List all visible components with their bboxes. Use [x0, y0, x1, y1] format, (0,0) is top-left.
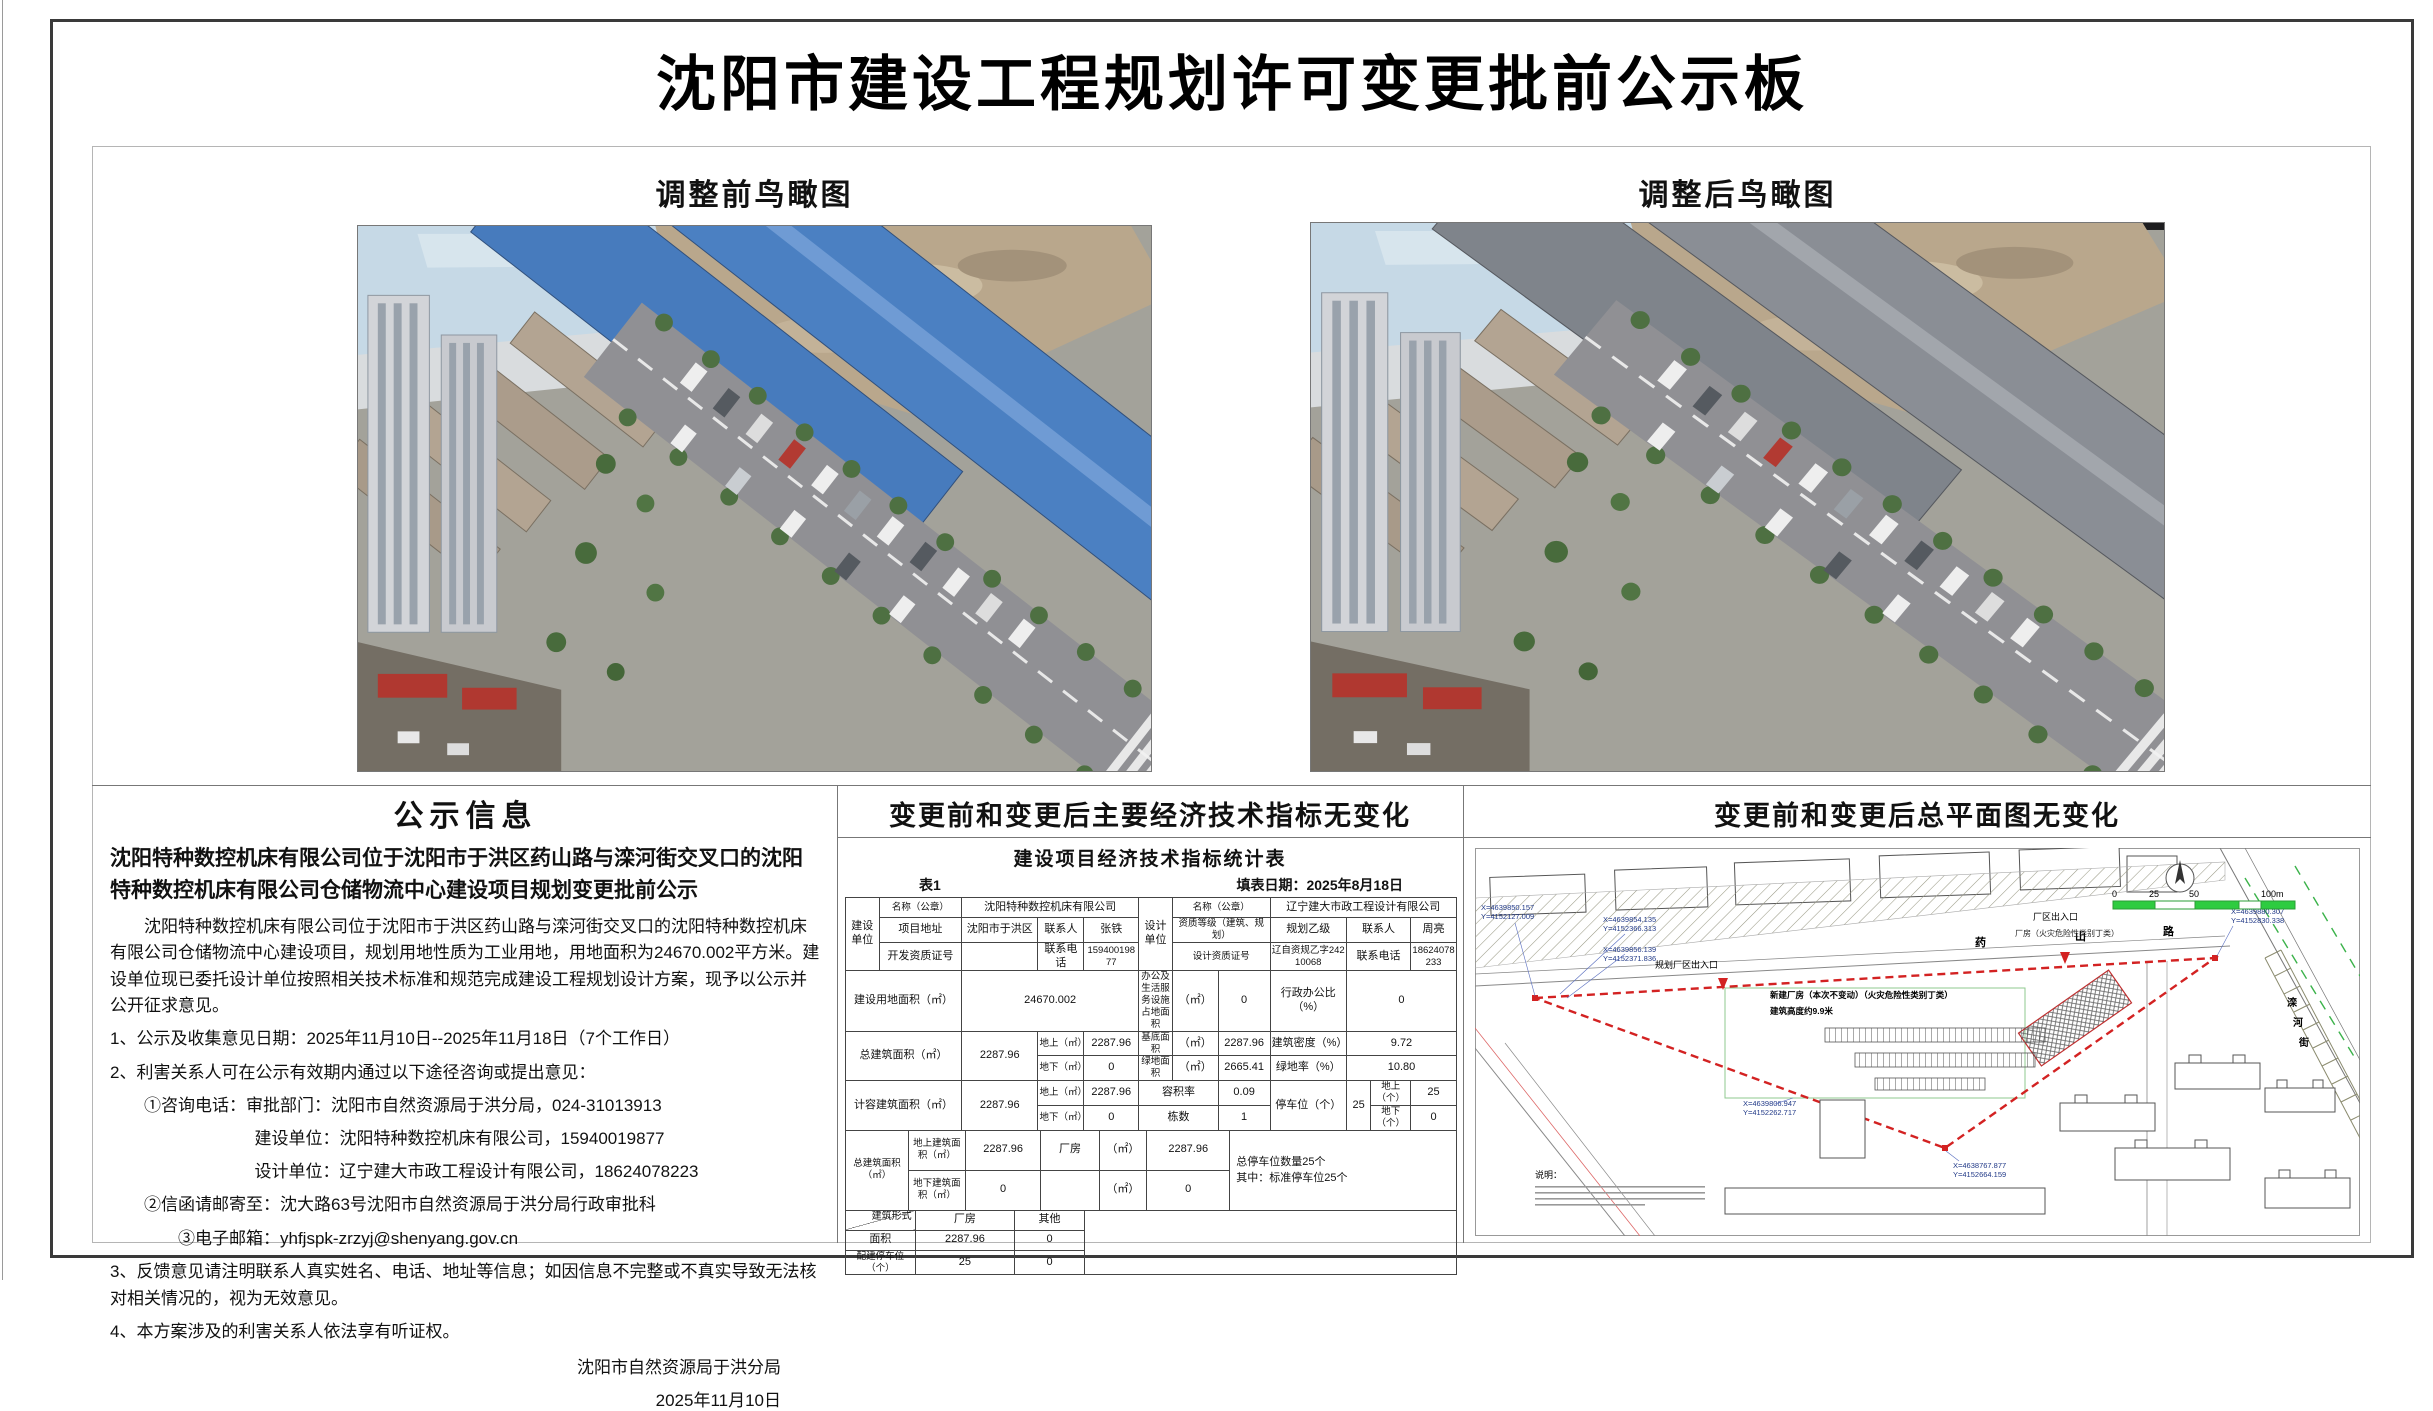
cell-form-factory: 厂房	[915, 1210, 1015, 1230]
cell-count-label: 栋数	[1139, 1105, 1218, 1130]
public-notice-column: 公示信息 沈阳特种数控机床有限公司位于沈阳市于洪区药山路与滦河街交叉口的沈阳特种…	[92, 785, 837, 1243]
indicators-column: 变更前和变更后主要经济技术指标无变化 建设项目经济技术指标统计表 表1 填表日期…	[837, 785, 1463, 1243]
cell-density-value: 9.72	[1346, 1031, 1456, 1056]
siteplan-header: 变更前和变更后总平面图无变化	[1463, 785, 2371, 838]
svg-text:Y=4152262.717: Y=4152262.717	[1743, 1108, 1796, 1117]
cell-far-value: 0.09	[1218, 1081, 1270, 1106]
parking-note-line1: 总停车位数量25个	[1236, 1154, 1455, 1171]
after-view-label: 调整后鸟瞰图	[1310, 170, 2165, 214]
cell-addr-label: 项目地址	[879, 918, 961, 943]
notice-item-channels: 2、利害关系人可在公示有效期内通过以下途径咨询或提出意见：	[110, 1059, 821, 1086]
cell-design-phone: 18624078233	[1411, 942, 1457, 971]
cell-build-phone: 15940019877	[1084, 942, 1139, 971]
economic-indicators-table-lower: 建筑形式 厂房 其他 面积 2287.96 0 配建停车位（个） 25 0	[845, 1210, 1457, 1276]
svg-text:X=4638767.877: X=4638767.877	[1953, 1161, 2006, 1170]
svg-text:100m: 100m	[2261, 889, 2284, 899]
table-number: 表1	[919, 875, 941, 895]
cell-factory-unit: （㎡）	[1099, 1130, 1147, 1170]
svg-text:Y=4152830.338: Y=4152830.338	[2231, 916, 2284, 925]
cell-factory-value: 2287.96	[1147, 1130, 1230, 1170]
cell-design-contact-label: 联系人	[1346, 918, 1410, 943]
page-title: 沈阳市建设工程规划许可变更批前公示板	[50, 36, 2414, 123]
aerial-view-after	[1310, 222, 2165, 772]
cell-cap-below-label: 地下（㎡）	[1038, 1105, 1084, 1130]
cell-area-other: 0	[1015, 1230, 1085, 1250]
cell-green-rate-value: 10.80	[1346, 1056, 1456, 1081]
cell-p-below-label: 地下（个）	[1371, 1105, 1411, 1130]
cell-below-area-type	[1041, 1170, 1099, 1210]
svg-text:Y=4152664.159: Y=4152664.159	[1953, 1170, 2006, 1179]
economic-indicators-table-upper: 建设单位 名称（公章） 沈阳特种数控机床有限公司 设计单位 名称（公章） 辽宁建…	[845, 897, 1457, 1131]
cell-parking-label: 停车位（个）	[1270, 1081, 1346, 1131]
cell-form-diagonal: 建筑形式	[846, 1210, 916, 1230]
cell-addr: 沈阳市于洪区	[962, 918, 1038, 943]
svg-text:Y=4152127.009: Y=4152127.009	[1481, 912, 1534, 921]
cell-dev-cert	[962, 942, 1038, 971]
cell-green-value: 2665.41	[1218, 1056, 1270, 1081]
cell-p-above-value: 25	[1411, 1081, 1457, 1106]
notice-header: 公示信息	[110, 791, 821, 835]
road-name-char1: 药	[1975, 935, 1986, 949]
cell-p-below-value: 0	[1411, 1105, 1457, 1130]
svg-text:50: 50	[2189, 889, 2199, 899]
cell-total-label: 总建筑面积（㎡）	[846, 1031, 962, 1081]
cell-design-name-label: 名称（公章）	[1172, 898, 1270, 918]
siteplan-drawing: 药 山 路 滦 河 街 厂房（火灾危险性类别丁类）	[1475, 848, 2360, 1236]
notice-date: 2025年11月10日	[110, 1386, 821, 1411]
cell-form-empty	[1084, 1210, 1456, 1275]
cell-total-value: 2287.96	[962, 1031, 1038, 1081]
notice-phone-line: ①咨询电话：审批部门：沈阳市自然资源局于洪分局，024-31013913	[110, 1092, 821, 1119]
cell-base-value: 2287.96	[1218, 1031, 1270, 1056]
cell-parking-note: 总停车位数量25个 其中：标准停车位25个	[1230, 1130, 1457, 1210]
indicators-header: 变更前和变更后主要经济技术指标无变化	[837, 785, 1463, 838]
factory-tag: 厂房（火灾危险性类别丁类）	[2015, 928, 2119, 938]
cell-qual-label: 资质等级（建筑、规划）	[1172, 918, 1270, 943]
cell-below-area-label: 地下建筑面积（㎡）	[908, 1170, 965, 1210]
aerial-view-before	[357, 225, 1152, 772]
notice-item-feedback: 3、反馈意见请注明联系人真实姓名、电话、地址等信息；如因信息不完整或不真实导致无…	[110, 1258, 821, 1312]
cell-land-label: 建设用地面积（㎡）	[846, 971, 962, 1031]
cell-base-unit: （㎡）	[1172, 1031, 1218, 1056]
cell-green-label: 绿地面积	[1139, 1056, 1173, 1081]
svg-text:Y=4152366.313: Y=4152366.313	[1603, 924, 1656, 933]
cell-phone-label: 联系电话	[1038, 942, 1084, 971]
notice-bold-title: 沈阳特种数控机床有限公司位于沈阳市于洪区药山路与滦河街交叉口的沈阳特种数控机床有…	[110, 843, 821, 906]
cell-above-label: 地上（㎡）	[1038, 1031, 1084, 1056]
cell-factory-label: 厂房	[1041, 1130, 1099, 1170]
road-right-char2: 河	[2293, 1017, 2303, 1029]
cell-admin-label: 行政办公比（%）	[1270, 971, 1346, 1031]
cell-green-unit: （㎡）	[1172, 1056, 1218, 1081]
cell-allot-other: 0	[1015, 1250, 1085, 1275]
notice-mail-line: ②信函请邮寄至：沈大路63号沈阳市自然资源局于洪分局行政审批科	[110, 1191, 821, 1218]
cell-office-value: 0	[1218, 971, 1270, 1031]
notice-paragraph: 沈阳特种数控机床有限公司位于沈阳市于洪区药山路与滦河街交叉口的沈阳特种数控机床有…	[110, 914, 821, 1019]
notice-email-line: ③电子邮箱：yhfjspk-zrzyj@shenyang.gov.cn	[110, 1225, 821, 1252]
cell-p-above-label: 地上（个）	[1371, 1081, 1411, 1106]
cell-below-value: 0	[1084, 1056, 1139, 1081]
svg-text:说明：: 说明：	[1535, 1169, 1562, 1180]
notice-builder-line: 建设单位：沈阳特种数控机床有限公司，15940019877	[110, 1125, 821, 1152]
cell-allot-factory: 25	[915, 1250, 1015, 1275]
entrance-label-1: 规划厂区出入口	[1655, 959, 1718, 970]
entrance-label-2: 厂区出入口	[2033, 911, 2078, 922]
notice-item-hearing: 4、本方案涉及的利害关系人依法享有听证权。	[110, 1318, 821, 1345]
fill-date: 填表日期：2025年8月18日	[1236, 875, 1403, 895]
svg-text:X=4639856.139: X=4639856.139	[1603, 945, 1656, 954]
cell-contact-label: 联系人	[1038, 918, 1084, 943]
svg-text:X=4639854.135: X=4639854.135	[1603, 915, 1656, 924]
cell-allot-label: 配建停车位（个）	[846, 1250, 916, 1275]
cell-office-label: 办公及生活服务设施占地面积	[1139, 971, 1173, 1031]
cell-far-label: 容积率	[1139, 1081, 1218, 1106]
road-right-char1: 滦	[2287, 996, 2298, 1009]
cell-count-value: 1	[1218, 1105, 1270, 1130]
cell-cap-above-value: 2287.96	[1084, 1081, 1139, 1106]
economic-indicators-table-mid: 总建筑面积（㎡） 地上建筑面积（㎡） 2287.96 厂房 （㎡） 2287.9…	[845, 1130, 1457, 1211]
cell-cap-below-value: 0	[1084, 1105, 1139, 1130]
svg-text:25: 25	[2149, 889, 2159, 899]
svg-text:0: 0	[2112, 889, 2117, 899]
cell-total2-label: 总建筑面积（㎡）	[846, 1130, 909, 1210]
cell-above-area-label: 地上建筑面积（㎡）	[908, 1130, 965, 1170]
cell-above-area-value: 2287.96	[965, 1130, 1041, 1170]
cell-base-label: 基底面积	[1139, 1031, 1173, 1056]
cell-area-label: 面积	[846, 1230, 916, 1250]
cell-cap-value: 2287.96	[962, 1081, 1038, 1131]
cell-office-unit: （㎡）	[1172, 971, 1218, 1031]
cell-cap-label: 计容建筑面积（㎡）	[846, 1081, 962, 1131]
cell-above-value: 2287.96	[1084, 1031, 1139, 1056]
cell-below-area-unit: （㎡）	[1099, 1170, 1147, 1210]
aerial-before-scene	[358, 226, 1151, 771]
aerial-after-scene	[1311, 223, 2164, 771]
factory-note-line2: 建筑高度约9.9米	[1769, 1006, 1833, 1016]
factory-note-line1: 新建厂房（本次不变动）（火灾危险性类别丁类）	[1770, 990, 1953, 1000]
svg-text:Y=4152371.836: Y=4152371.836	[1603, 954, 1656, 963]
notice-designer-line: 设计单位：辽宁建大市政工程设计有限公司，18624078223	[110, 1158, 821, 1185]
road-right-char3: 街	[2298, 1036, 2309, 1049]
cell-below-label: 地下（㎡）	[1038, 1056, 1084, 1081]
cell-build-unit: 建设单位	[846, 898, 880, 971]
cell-land-value: 24670.002	[962, 971, 1139, 1031]
road-name-char3: 路	[2163, 924, 2175, 938]
cell-green-rate-label: 绿地率（%）	[1270, 1056, 1346, 1081]
siteplan-svg: 药 山 路 滦 河 街 厂房（火灾危险性类别丁类）	[1475, 848, 2360, 1236]
screen-edge-line	[2, 0, 3, 1280]
parking-note-line2: 其中：标准停车位25个	[1236, 1170, 1455, 1187]
cell-dev-cert-label: 开发资质证号	[879, 942, 961, 971]
cell-admin-value: 0	[1346, 971, 1456, 1031]
cell-cap-above-label: 地上（㎡）	[1038, 1081, 1084, 1106]
cell-design-name: 辽宁建大市政工程设计有限公司	[1270, 898, 1456, 918]
cell-form-other: 其他	[1015, 1210, 1085, 1230]
before-view-label: 调整前鸟瞰图	[357, 170, 1152, 214]
svg-text:X=4639806.947: X=4639806.947	[1743, 1099, 1796, 1108]
cell-area-factory: 2287.96	[915, 1230, 1015, 1250]
cell-design-cert: 辽自资规乙字24210068	[1270, 942, 1346, 971]
cell-parking-value: 25	[1346, 1081, 1370, 1131]
cell-design-phone-label: 联系电话	[1346, 942, 1410, 971]
notice-signature: 沈阳市自然资源局于洪分局	[110, 1353, 821, 1378]
indicators-table-title: 建设项目经济技术指标统计表	[837, 844, 1463, 871]
cell-design-cert-label: 设计资质证号	[1172, 942, 1270, 971]
cell-below-area-total: 0	[1147, 1170, 1230, 1210]
cell-below-area-value: 0	[965, 1170, 1041, 1210]
cell-design-unit: 设计单位	[1139, 898, 1173, 971]
cell-build-name: 沈阳特种数控机床有限公司	[962, 898, 1139, 918]
cell-qual: 规划乙级	[1270, 918, 1346, 943]
cell-density-label: 建筑密度（%）	[1270, 1031, 1346, 1056]
notice-item-dates: 1、公示及收集意见日期：2025年11月10日--2025年11月18日（7个工…	[110, 1025, 821, 1052]
svg-text:X=4639850.157: X=4639850.157	[1481, 903, 1534, 912]
cell-design-contact: 周亮	[1411, 918, 1457, 943]
cell-name-label: 名称（公章）	[879, 898, 961, 918]
cell-build-contact: 张铁	[1084, 918, 1139, 943]
